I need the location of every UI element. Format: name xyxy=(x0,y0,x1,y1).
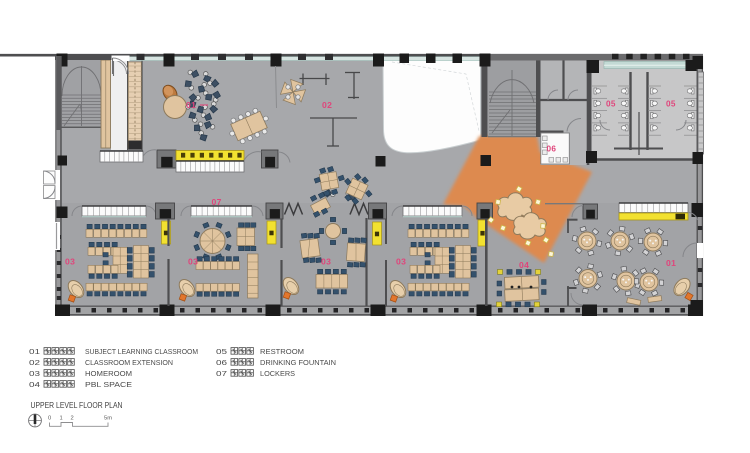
svg-text:HOMEROOM: HOMEROOM xyxy=(85,369,132,378)
svg-text:PBL SPACE: PBL SPACE xyxy=(85,380,132,389)
svg-text:05: 05 xyxy=(606,100,616,109)
svg-text:03: 03 xyxy=(188,257,198,267)
svg-text:03: 03 xyxy=(321,257,331,267)
svg-text:07: 07 xyxy=(216,369,227,378)
svg-text:LOCKERS: LOCKERS xyxy=(260,369,295,378)
svg-text:0: 0 xyxy=(48,416,51,422)
svg-text:05: 05 xyxy=(666,100,676,109)
svg-text:02: 02 xyxy=(322,100,332,110)
svg-text:UPPER LEVEL FLOOR PLAN: UPPER LEVEL FLOOR PLAN xyxy=(31,401,123,410)
svg-text:5m: 5m xyxy=(104,416,112,422)
svg-text:03: 03 xyxy=(65,257,75,267)
svg-text:06: 06 xyxy=(216,358,227,367)
svg-text:RESTROOM: RESTROOM xyxy=(260,347,304,356)
svg-text:SUBJECT LEARNING CLASSROOM: SUBJECT LEARNING CLASSROOM xyxy=(85,347,198,356)
svg-text:CLASSROOM EXTENSION: CLASSROOM EXTENSION xyxy=(85,358,173,367)
svg-text:04: 04 xyxy=(519,260,529,270)
svg-text:03: 03 xyxy=(29,369,40,378)
svg-text:DRINKING FOUNTAIN: DRINKING FOUNTAIN xyxy=(260,358,336,367)
svg-text:1: 1 xyxy=(60,416,63,422)
svg-text:01: 01 xyxy=(666,258,676,268)
svg-text:04: 04 xyxy=(29,380,40,389)
svg-text:06: 06 xyxy=(547,145,557,154)
svg-text:01: 01 xyxy=(186,100,196,110)
svg-text:03: 03 xyxy=(396,257,406,267)
svg-text:05: 05 xyxy=(216,347,227,356)
svg-text:01: 01 xyxy=(29,347,40,356)
svg-text:2: 2 xyxy=(71,416,74,422)
svg-text:02: 02 xyxy=(29,358,40,367)
